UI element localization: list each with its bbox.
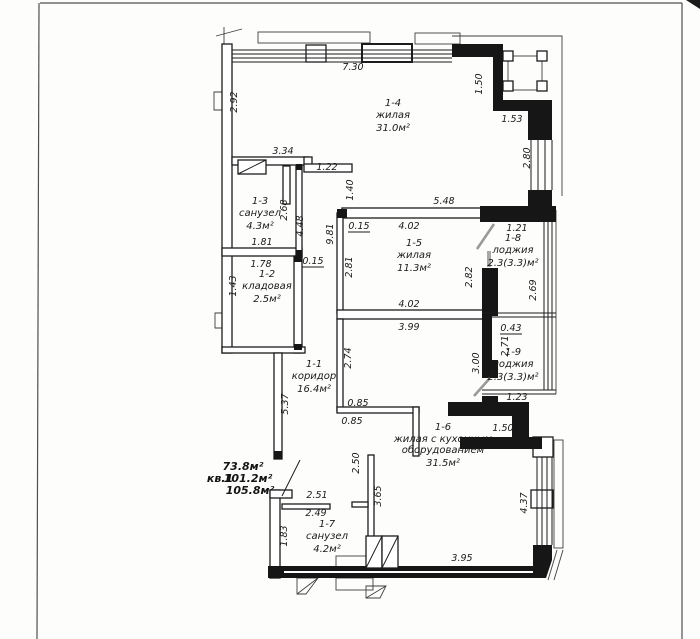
wall-segment: [482, 316, 492, 360]
vent-shaft-kitchen: [366, 536, 398, 568]
wall-segment: [222, 248, 302, 256]
room-id-label: 1-1: [306, 359, 322, 370]
dimension-label: 2.50: [351, 452, 362, 473]
room-name-label: санузел: [306, 531, 349, 542]
wall-segment: [362, 44, 412, 62]
room-id-label: 1-2: [259, 269, 275, 280]
scan-artifact: [686, 0, 700, 9]
room-name-label: коридор: [292, 371, 336, 382]
dimension-label: 5.37: [280, 393, 291, 414]
vent-shaft-bathroom: [238, 160, 266, 174]
dimension-label: 1.53: [501, 114, 522, 125]
room-area-label: 11.3м²: [397, 263, 431, 274]
wall-segment: [296, 164, 302, 170]
apartment-summary: 73.8м² кв.1 101.2м² 105.8м²: [207, 460, 275, 497]
room-name-label: оборудованием: [402, 444, 485, 456]
room-name-label: лоджия: [492, 359, 534, 370]
room-area-label: 2.5м²: [253, 294, 280, 305]
room-name-label: жилая: [375, 110, 410, 121]
room-name-label: жилая: [396, 250, 431, 261]
outline-detail: [415, 33, 460, 44]
dimension-label: 2.51: [306, 490, 327, 501]
dimension-label: 2.82: [464, 266, 475, 287]
scanned-floor-plan-page: 7.302.921.501.532.803.341.221.405.484.02…: [0, 0, 700, 639]
room-area-label: 4.2м²: [313, 544, 340, 555]
floor-plan-drawing: 7.302.921.501.532.803.341.221.405.484.02…: [0, 0, 700, 639]
room-name-label: санузел: [239, 208, 282, 219]
room-area-label: 16.4м²: [297, 384, 331, 395]
room-name-label: лоджия: [492, 245, 534, 256]
wall-segment: [512, 402, 529, 439]
outline-detail: [214, 92, 222, 110]
dimension-label: 1.43: [228, 275, 239, 296]
wall-segment: [296, 250, 302, 256]
wall-segment: [337, 310, 483, 319]
wall-segment: [337, 213, 343, 313]
room-area-label: 2.3(3.3)м²: [487, 372, 538, 383]
outline-detail: [554, 440, 563, 548]
dimension-label: 1.40: [345, 179, 356, 200]
wall-segment: [282, 566, 535, 571]
dimension-label: 7.30: [342, 62, 363, 73]
dimension-label: 0.85: [347, 398, 368, 409]
outline-detail: [216, 29, 242, 36]
room-id-label: 1-8: [505, 233, 521, 244]
wall-segment: [448, 402, 522, 416]
dimension-label: 2.92: [229, 91, 240, 112]
room-id-label: 1-4: [385, 98, 401, 109]
dimension-label: 2.80: [522, 147, 533, 168]
wall-segment: [274, 451, 282, 459]
room-area-label: 31.5м²: [426, 458, 460, 469]
dimension-label: 9.81: [325, 223, 336, 244]
outline-detail: [258, 32, 370, 43]
room-id-label: 1-5: [406, 238, 422, 249]
room-area-label: 4.3м²: [246, 221, 273, 232]
column-symbol: [503, 51, 547, 91]
dimension-label: 1.22: [316, 162, 337, 173]
wall-segment: [482, 268, 498, 316]
room-id-label: 1-6: [435, 422, 451, 433]
dimension-label: 1.50: [474, 73, 485, 94]
dimension-label: 2.81: [344, 256, 355, 277]
dimension-label: 4.48: [295, 215, 306, 236]
dimension-label: 3.65: [373, 485, 384, 506]
dimension-label: 3.34: [272, 146, 293, 157]
outline-detail: [336, 578, 373, 590]
dimension-label: 4.02: [398, 299, 419, 310]
dimension-label: 1.81: [251, 237, 272, 248]
dimension-label: 2.49: [305, 508, 326, 519]
wall-segment: [352, 502, 368, 507]
wall-segment: [337, 209, 347, 218]
loggia-1-8-door-swing: [477, 224, 494, 249]
wall-segment: [493, 44, 503, 108]
total-area-full: 105.8м²: [226, 484, 275, 497]
outline-detail: [215, 313, 222, 328]
dimension-label: 2.69: [528, 279, 539, 300]
wall-segment: [528, 100, 552, 140]
dimension-label: 5.48: [433, 196, 454, 207]
dimension-label: 1.50: [492, 423, 513, 434]
wall-segment: [294, 344, 302, 350]
room-area-label: 2.3(3.3)м²: [487, 258, 538, 269]
wall-segment: [294, 256, 302, 353]
wall-segment: [222, 44, 232, 353]
dimension-label: 0.15: [302, 256, 323, 267]
dimension-label: 0.15: [348, 221, 369, 232]
wall-segment: [342, 208, 483, 218]
wall-segment: [296, 166, 302, 256]
room-name-label: жилая с кухонным: [393, 434, 493, 445]
dimension-label: 3.95: [451, 553, 472, 564]
wall-segment: [222, 347, 305, 353]
room-area-label: 31.0м²: [376, 123, 410, 134]
dimension-label: 2.74: [343, 347, 354, 368]
dimension-label: 1.23: [506, 392, 527, 403]
wall-segment: [528, 190, 552, 207]
room-id-label: 1-3: [252, 196, 268, 207]
wall-segment: [294, 256, 302, 262]
room-id-label: 1-7: [319, 519, 336, 530]
wall-segment: [268, 566, 284, 578]
wall-segment: [282, 573, 535, 578]
wall-segment: [283, 166, 290, 204]
dimension-label: 3.00: [471, 352, 482, 373]
room-id-label: 1-9: [505, 347, 521, 358]
dimension-label: 4.37: [519, 492, 530, 513]
dimension-label: 0.85: [341, 416, 362, 427]
dimension-label: 0.43: [500, 323, 521, 334]
dimension-label: 1.83: [279, 525, 290, 546]
wall-segment: [480, 206, 556, 222]
dimension-label: 4.02: [398, 221, 419, 232]
wall-segment: [533, 545, 552, 578]
room-name-label: кладовая: [242, 281, 292, 292]
dimension-label: 3.99: [398, 322, 419, 333]
